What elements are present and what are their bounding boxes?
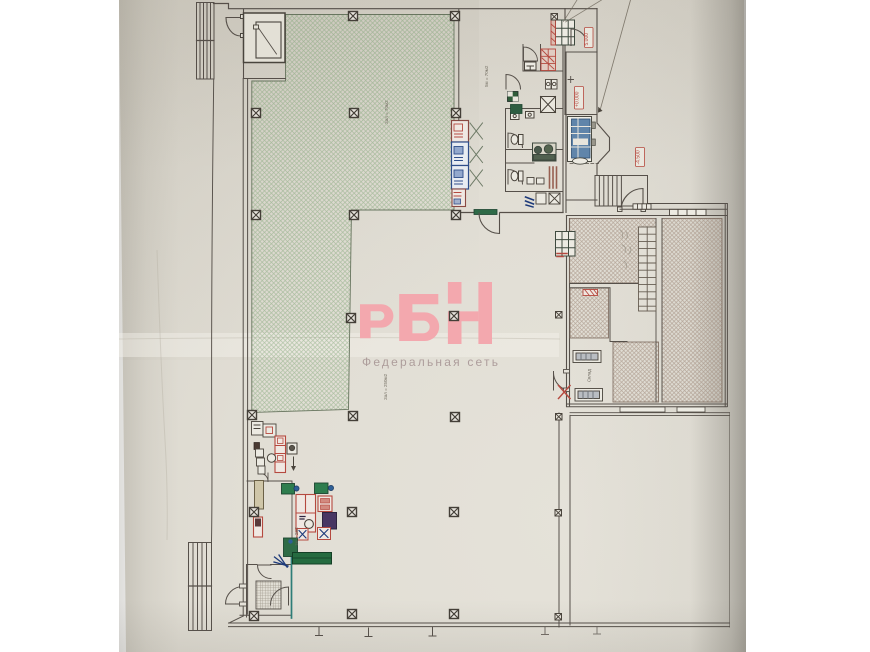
svg-text:-4.500: -4.500 — [636, 150, 642, 164]
svg-text:+0.000: +0.000 — [575, 91, 581, 107]
svg-text:1м = 2м2: 1м = 2м2 — [294, 527, 299, 546]
svg-text:5.000: 5.000 — [584, 33, 590, 46]
svg-text:Склад: Склад — [587, 369, 592, 382]
svg-text:5м = 70м2: 5м = 70м2 — [484, 65, 489, 87]
svg-text:Федеральная сеть: Федеральная сеть — [362, 355, 500, 369]
svg-text:Зал = 250м2: Зал = 250м2 — [383, 373, 388, 400]
svg-text:Зал = 70м2: Зал = 70м2 — [384, 100, 389, 124]
